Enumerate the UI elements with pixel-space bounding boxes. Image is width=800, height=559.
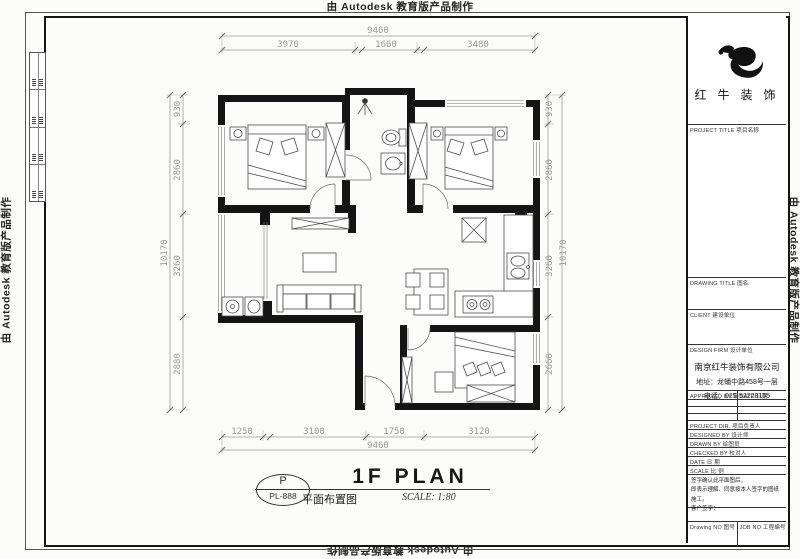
company-name: 南京红牛装饰有限公司 — [688, 361, 786, 373]
dim-label: 930 — [545, 101, 555, 117]
dim-label: 2880 — [173, 353, 183, 375]
dim-label: 1750 — [383, 427, 405, 437]
project-title-cell: PROJECT TITLE 项目名称 — [688, 124, 786, 277]
field-row: DRAWN BY 绘图员 — [688, 438, 786, 447]
logo-cell: 红 牛 装 饰 — [688, 16, 786, 124]
hall-cabinet — [402, 357, 412, 403]
field-row: SCALE 比 例 — [688, 465, 786, 474]
field-row: DATE 日 期 — [688, 456, 786, 465]
dim-label: 3480 — [467, 40, 489, 50]
sofa — [277, 285, 361, 312]
approved-row: APPROVED BY 审定 DATE 日期 — [688, 390, 786, 399]
dim-label: 9460 — [367, 441, 389, 451]
drawing-no-row: Drawing NO 图号 JOB NO 工程编号 — [688, 521, 786, 546]
title-block: 红 牛 装 饰 PROJECT TITLE 项目名称 DRAWING TITLE… — [686, 16, 786, 543]
plan-subtitle: 平面布置图 — [302, 491, 392, 507]
dim-label: 3260 — [545, 255, 555, 277]
field-row: CHECKED BY 校对人 — [688, 447, 786, 456]
title-rule — [255, 489, 490, 490]
bed-second — [445, 127, 493, 189]
signature-strip — [29, 52, 46, 202]
dim-label: 2860 — [173, 159, 183, 181]
wardrobe-master — [326, 123, 345, 177]
spacer-cell — [688, 507, 786, 521]
dim-label: 930 — [173, 101, 183, 117]
dim-label: 3970 — [277, 40, 299, 50]
floor-plan: 9460 3970 1660 3480 1250 3100 1750 3120 … — [160, 20, 580, 460]
wardrobe-second — [409, 123, 427, 179]
washbasin — [386, 157, 401, 170]
client-cell: CLIENT 建设单位 — [688, 309, 786, 344]
note-cell: 签字确认此平面图后， 即表示理解、同意按本人签字的图纸施工。 客户签字： — [688, 474, 786, 507]
dim-label: 10170 — [160, 239, 170, 266]
drawing-sheet: 由 Autodesk 教育版产品制作 由 Autodesk 教育版产品制作 由 … — [0, 0, 800, 559]
bed-third — [455, 332, 515, 388]
wardrobe-third — [467, 385, 515, 402]
logo-text: 红 牛 装 饰 — [694, 86, 779, 103]
dim-label: 3260 — [173, 255, 183, 277]
plan-scale: SCALE: 1:80 — [402, 492, 456, 503]
company-address: 地址：龙蟠中路458号一层 — [688, 377, 786, 387]
dining-set — [406, 269, 448, 315]
bathroom-fixtures — [358, 99, 406, 175]
dim-label: 2660 — [545, 353, 555, 375]
dim-label: 2860 — [545, 159, 555, 181]
coffee-table — [303, 253, 336, 272]
empty-row — [688, 406, 786, 413]
dim-label: 3100 — [303, 427, 325, 437]
empty-row — [688, 399, 786, 406]
dim-label: 1250 — [231, 427, 253, 437]
laundry — [222, 297, 263, 316]
bull-logo-icon — [706, 38, 768, 82]
bed-master — [248, 125, 306, 189]
tv-cabinet — [292, 218, 349, 229]
plan-title: 1F PLAN — [320, 465, 500, 489]
dim-label: 9460 — [367, 26, 389, 36]
dim-label: 10170 — [559, 239, 569, 266]
field-row: PROJECT DIR. 项目负责人 — [688, 420, 786, 429]
desk — [435, 372, 453, 392]
dim-label: 3120 — [468, 427, 490, 437]
design-firm-cell: DESIGN FIRM 设计单位 南京红牛装饰有限公司 地址：龙蟠中路458号一… — [688, 344, 786, 390]
field-row: DESIGNED BY 设计师 — [688, 429, 786, 438]
empty-row — [688, 413, 786, 420]
dim-label: 1660 — [375, 40, 397, 50]
drawing-title-cell: DRAWING TITLE 图名 — [688, 277, 786, 309]
furniture — [222, 99, 533, 404]
watermark-left: 由 Autodesk 教育版产品制作 — [0, 197, 14, 344]
kitchen — [455, 215, 533, 317]
stamp-letter: P — [256, 475, 310, 487]
